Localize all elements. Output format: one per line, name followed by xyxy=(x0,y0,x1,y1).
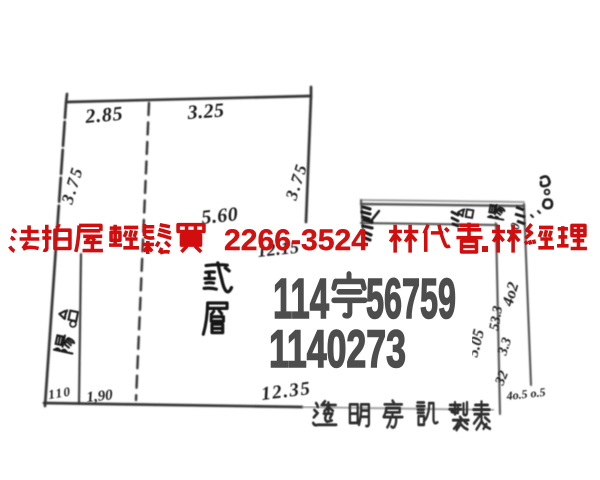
svg-text:1140273: 1140273 xyxy=(269,320,406,379)
svg-text:53.3: 53.3 xyxy=(487,305,506,332)
svg-text:1,90: 1,90 xyxy=(86,387,114,406)
svg-text:110: 110 xyxy=(47,384,72,402)
svg-text:4o.5 o.5: 4o.5 o.5 xyxy=(505,385,546,403)
svg-text:2.85: 2.85 xyxy=(84,103,125,128)
svg-text:2266-3524: 2266-3524 xyxy=(224,224,368,257)
svg-text:3.25: 3.25 xyxy=(186,99,225,124)
svg-text:12.35: 12.35 xyxy=(260,378,312,405)
svg-text:4o2: 4o2 xyxy=(499,280,522,309)
svg-text:32: 32 xyxy=(492,369,512,389)
